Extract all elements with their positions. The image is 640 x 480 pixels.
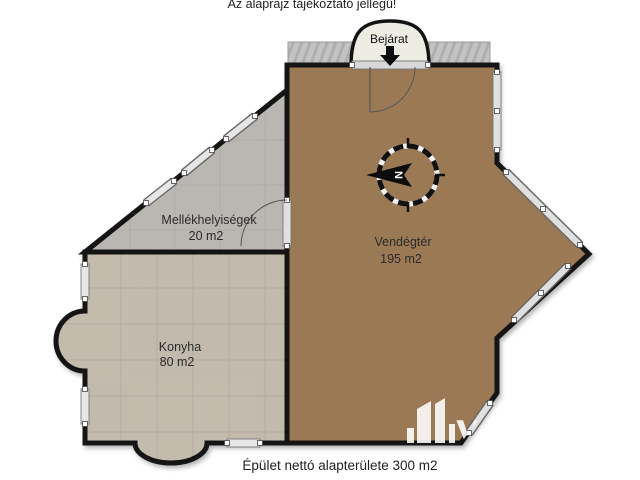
- kitchen-area: 80 m2: [160, 355, 195, 369]
- compass-north-letter: N: [392, 171, 404, 179]
- guest-area-area: 195 m2: [380, 252, 422, 266]
- entrance-label: Bejárat: [370, 32, 409, 46]
- window-right-wall: [493, 70, 501, 153]
- watermark-building-3: [435, 398, 445, 444]
- watermark-building-bar-1: [407, 428, 414, 444]
- floorplan-drawing: N y Az alaprajz tájékoztató jellegű! Bej…: [0, 0, 640, 480]
- guest-area-name: Vendégtér: [375, 235, 432, 249]
- floorplan-canvas: N y Az alaprajz tájékoztató jellegű! Bej…: [0, 0, 640, 480]
- restrooms-name: Mellékhelyiségek: [161, 213, 257, 227]
- window-kitchen-bottom-wall: [225, 439, 263, 447]
- restrooms-area: 20 m2: [189, 229, 224, 243]
- total-area-text: Épület nettó alapterülete 300 m2: [242, 458, 437, 473]
- plan-disclaimer-text: Az alaprajz tájékoztató jellegű!: [228, 0, 397, 11]
- kitchen-name: Konyha: [159, 340, 201, 354]
- watermark-building-bar-4: [449, 424, 455, 444]
